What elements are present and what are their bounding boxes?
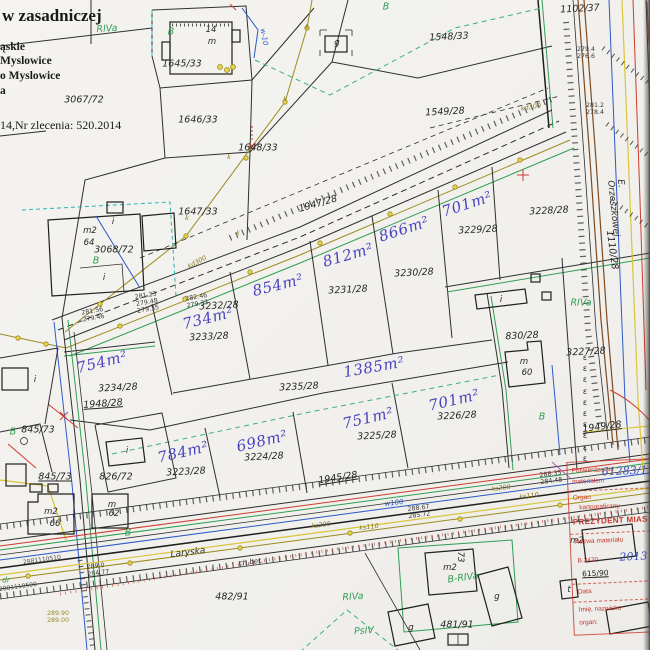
cadastral-map-page: 3067/721645/331646/331647/331648/331548/…	[0, 0, 650, 650]
oliv-label: ks110	[359, 522, 379, 532]
bld-label: t	[567, 585, 570, 595]
area-label: 751m²	[341, 403, 396, 432]
stamp-line: Data	[578, 588, 592, 596]
parcel-label: 3228/28	[529, 204, 569, 217]
stamp-line: Nazwa materiału	[575, 537, 624, 546]
elev-label: 281.2 278.4	[586, 102, 604, 116]
area-label: 866m²	[377, 212, 432, 245]
parcel-label: 482/91	[215, 592, 248, 603]
scan-edge-shadow	[643, 0, 650, 650]
small-label: ch.bet.	[238, 557, 263, 568]
greens-label: dr	[2, 576, 10, 585]
bld-label: m2	[443, 563, 457, 573]
bld-label: m	[520, 357, 528, 367]
parcel-label: 3225/28	[357, 429, 397, 442]
oliv-label: k	[227, 153, 231, 161]
eps-label: ε ε ε ε ε ε ε ε ε ε	[583, 352, 587, 464]
parcel-label: 1945/28	[318, 469, 359, 486]
oliv-label: ks110	[519, 491, 539, 501]
bluesm-label: w100	[384, 498, 404, 508]
header-line: a	[0, 85, 6, 97]
elev-label: 279.4 276.6	[577, 46, 595, 60]
bld-label: 73	[455, 552, 465, 563]
parcel-label: 1648/33	[238, 143, 277, 154]
parcel-label: 830/28	[505, 330, 539, 343]
stamp-separator	[569, 487, 649, 491]
parcel-label: 3233/28	[189, 330, 229, 343]
parcel-label: 826/72	[99, 472, 132, 483]
bld-label: 66	[50, 519, 61, 529]
elev-label: 289.0 284.77	[86, 561, 110, 578]
elev-label: 288.67 285.72	[407, 503, 431, 520]
parcel-label: 3234/28	[98, 381, 138, 394]
parcel-label: 3068/72	[94, 245, 133, 256]
bld-label: i	[34, 375, 36, 385]
green-label: B	[93, 256, 100, 267]
stamp-authority: PREZYDENT MIAS	[573, 514, 648, 526]
oliv-label: kd300	[520, 101, 541, 112]
green-label: B	[10, 427, 17, 438]
parcel-label: 3229/28	[458, 223, 498, 236]
certification-stamp: 61283/1118 Potwierdza się materiałem Org…	[566, 458, 650, 636]
bld-label: i	[126, 446, 128, 456]
parcel-label: 3235/28	[279, 380, 319, 393]
oliv-label: kd300	[186, 254, 208, 271]
order-number-line: 14,Nr zlecenia: 520.2014	[0, 118, 121, 133]
parcel-label: 1947/28	[298, 193, 339, 214]
bld-label: m2	[44, 507, 58, 517]
stamp-line: materiałem	[572, 477, 604, 485]
bld-label: i	[103, 273, 105, 283]
parcel-label: 1102/37	[560, 2, 600, 15]
stamp-separator	[573, 580, 650, 584]
green-label: B	[383, 2, 390, 13]
stamp-line: organ:	[579, 619, 598, 627]
stamp-separator	[570, 530, 650, 534]
bld-label: 60	[522, 368, 533, 378]
bld-label: g	[494, 592, 499, 602]
stamp-line: Imię, nazwisko	[579, 605, 622, 614]
stamp-line: Organ	[573, 494, 591, 502]
elev-label: 288.35 284.48	[539, 469, 563, 486]
parcel-label: 3223/28	[166, 465, 206, 478]
bld-label: 64	[84, 238, 95, 248]
map-title: w zasadniczej	[2, 6, 102, 26]
elevy-label: 289.90 289.00	[47, 610, 69, 624]
bld-label: g	[408, 623, 413, 633]
area-label: 784m²	[156, 437, 211, 466]
parcel-label: 1949/28	[582, 419, 623, 435]
green-label: PsIV	[354, 625, 375, 637]
elev-label: 281.23 279.48 279.35	[134, 290, 159, 315]
parcel-label: 845/73	[21, 425, 54, 436]
oliv-label: ks200	[491, 483, 511, 493]
header-line: Myslowice	[0, 55, 52, 67]
green-label: B	[539, 412, 546, 423]
area-label: 854m²	[251, 270, 306, 300]
parcel-label: 845/73	[38, 472, 71, 483]
stamp-line: kartograficzny	[579, 503, 620, 512]
oliv-label: ks200	[311, 520, 331, 530]
tiny-label: 2881110510	[23, 554, 62, 566]
header-line: ąskie	[0, 41, 25, 53]
street-label: E. Orzeszkowej	[605, 179, 631, 237]
parcel-label: 481/91	[440, 620, 473, 631]
elev-label: 281.56 279.46	[81, 306, 105, 324]
stamp-ref-number: 615/90	[582, 568, 609, 578]
parcel-label: 1548/33	[429, 30, 469, 43]
area-label: 812m²	[321, 239, 376, 271]
header-line: o Myslowice	[0, 70, 60, 82]
area-label: 754m²	[75, 347, 130, 377]
street-label: Laryska	[170, 546, 206, 560]
oliv-label: k	[236, 229, 240, 237]
bld-label: 62	[109, 509, 120, 519]
parcel-label: 3230/28	[394, 266, 434, 279]
parcel-label: 3231/28	[328, 283, 368, 296]
bld-label: i	[112, 217, 114, 227]
green-label: RIVa	[342, 591, 364, 603]
bld-label: g	[334, 38, 339, 48]
area-label: 701m²	[440, 187, 495, 220]
stamp-line: B.2470	[577, 557, 598, 565]
parcel-label: 1948/28	[83, 397, 123, 411]
green-label: B	[125, 528, 132, 539]
bld-label: i	[500, 295, 502, 305]
map-header: w zasadniczej ąskie Myslowice o Myslowic…	[0, 0, 300, 140]
oliv-label: k	[185, 214, 189, 222]
area-label: 1385m²	[342, 353, 406, 381]
bld-label: m2	[83, 226, 97, 236]
green-label: RIVa	[570, 298, 591, 309]
oliv-label: k	[305, 23, 309, 31]
parcel-label: 1549/28	[425, 105, 465, 118]
stamp-separator	[573, 598, 650, 602]
